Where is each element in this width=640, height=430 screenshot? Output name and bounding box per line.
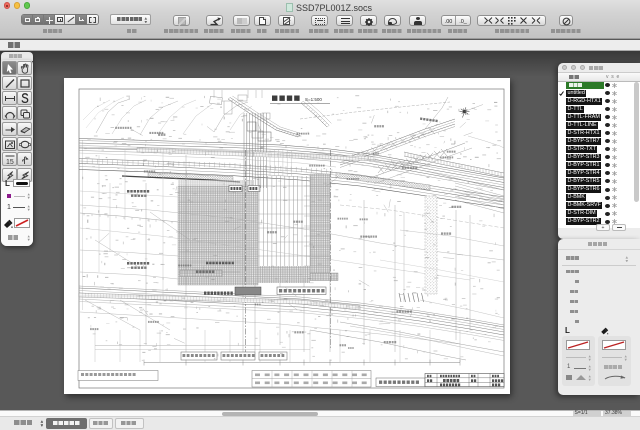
svg-text:15: 15 (6, 159, 14, 166)
